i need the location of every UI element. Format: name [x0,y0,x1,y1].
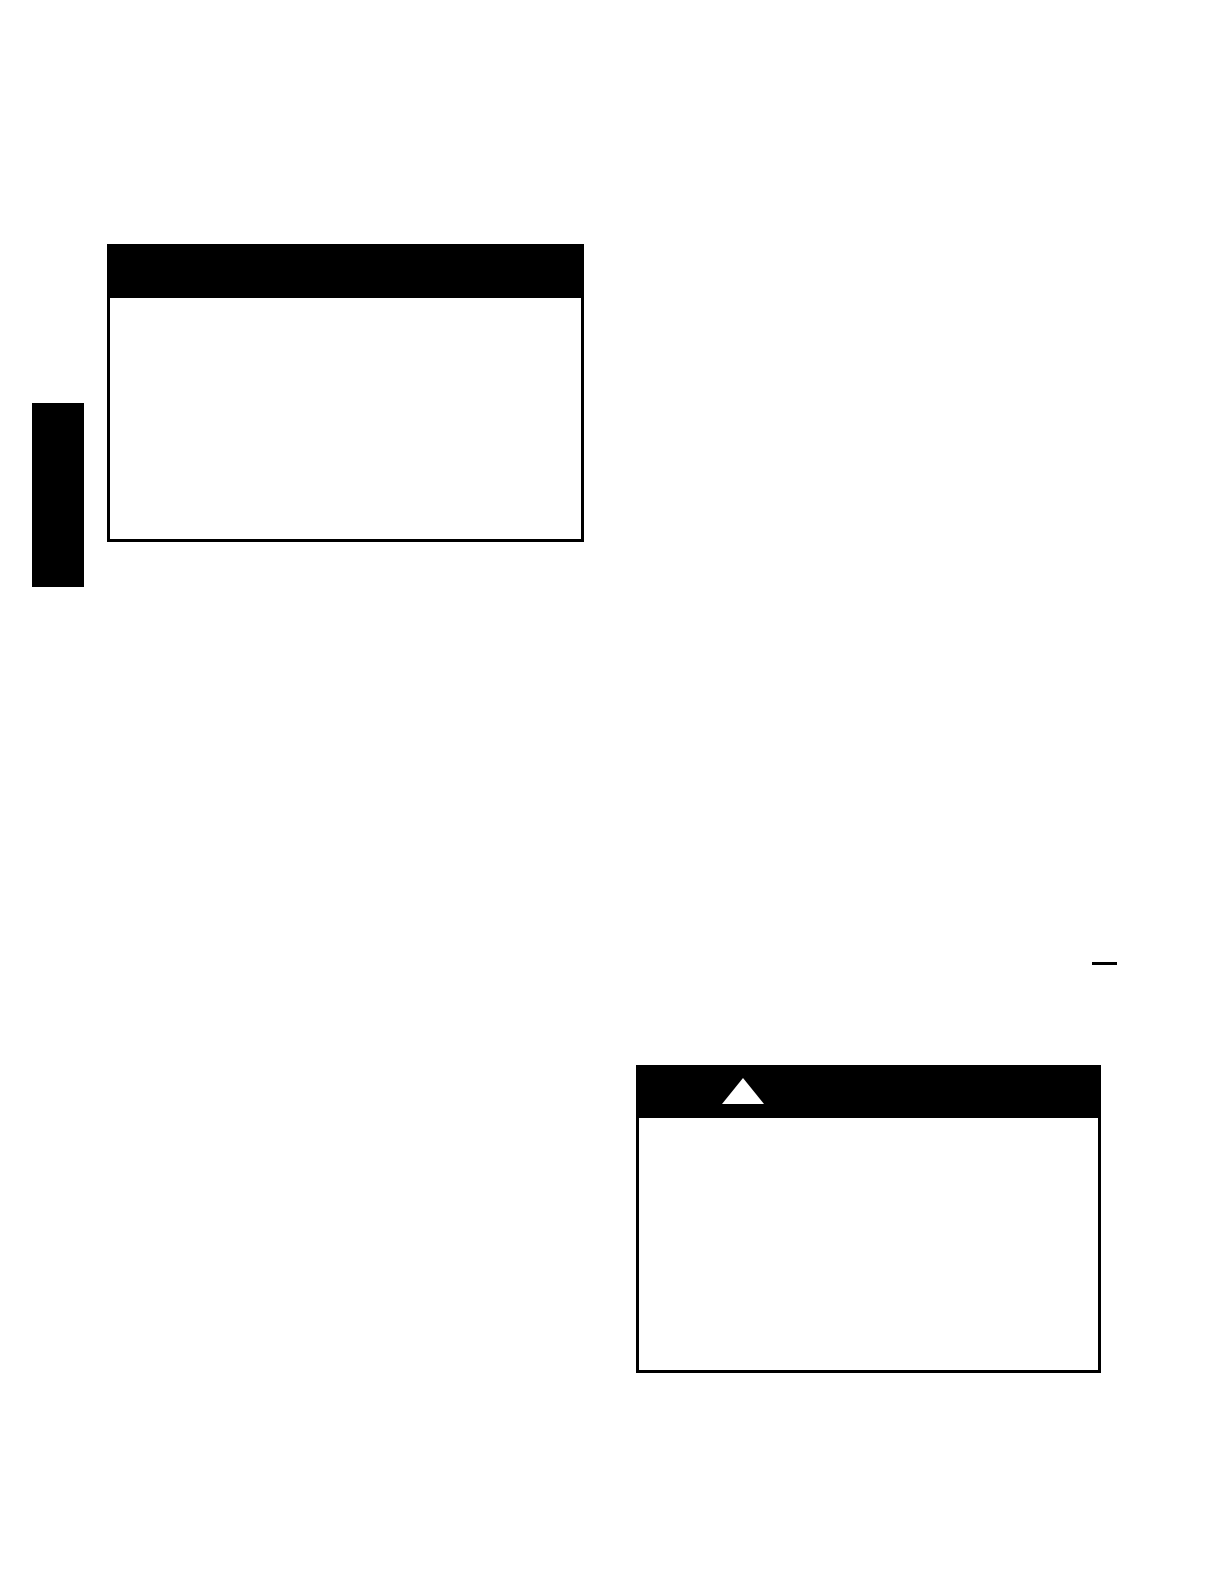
notice-box-header-bar [110,247,581,298]
notice-box [107,244,584,542]
document-page [0,0,1224,1584]
warning-box-body [639,1118,1098,1370]
section-tab [32,403,84,587]
warning-triangle-icon [722,1078,764,1104]
warning-box-header-bar [639,1068,1098,1118]
warning-triangle-shape [722,1078,764,1104]
underline-mark [1092,962,1117,965]
notice-box-body [110,298,581,539]
warning-box [636,1065,1101,1373]
